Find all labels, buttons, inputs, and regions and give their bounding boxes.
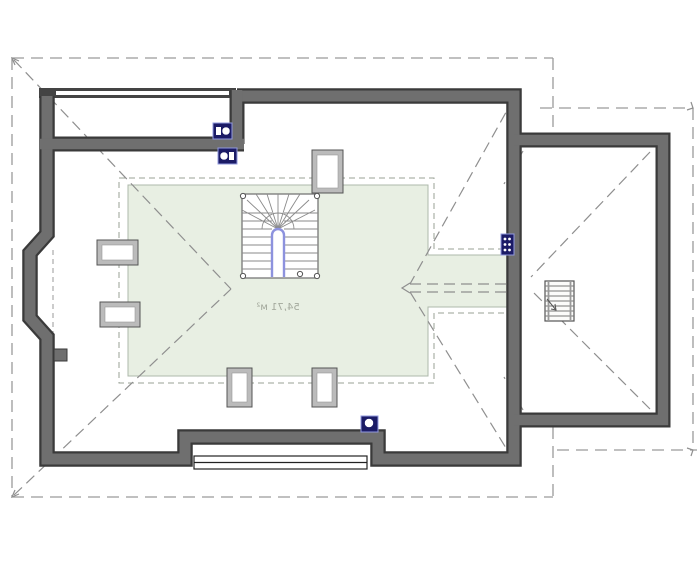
floor-plan-page: 54,71 м² (0, 0, 700, 575)
skylight-top-glass (317, 155, 338, 188)
ext-hip-line-top (531, 152, 650, 277)
skylight-left-lower-glass (105, 307, 135, 322)
wall-stub (54, 349, 67, 361)
stair-newel-posts-dot (314, 273, 319, 278)
overhang-arrow-ne (687, 102, 693, 110)
wall-vent-grille-holes-dot (508, 249, 511, 252)
wall-vent-grille-holes-dot (504, 249, 507, 252)
overhang-arrow-se (687, 448, 693, 456)
vent-chimney-top-inner-slot (229, 152, 234, 160)
stair-newel-posts-dot (240, 273, 245, 278)
stair-newel-posts-dot (297, 271, 302, 276)
ext-wall-outline-dark (514, 140, 663, 420)
wall-vent-grille-holes-dot (508, 243, 511, 246)
vent-chimney-top-outer-slot (216, 127, 221, 135)
vent-chimney-top-inner-flue (220, 152, 228, 160)
wall-vent-grille (501, 234, 514, 255)
area-label: 54,71 м² (256, 302, 299, 313)
skylight-left-upper-glass (102, 245, 133, 260)
wall-vent-grille-holes-dot (508, 238, 511, 241)
skylight-bottom-right-glass (317, 373, 332, 402)
stair-newel-posts-dot (240, 193, 245, 198)
vent-chimney-top-outer-flue (222, 127, 230, 135)
stair-newel-posts-dot (314, 193, 319, 198)
skylight-bottom-left-glass (232, 373, 247, 402)
wall-vent-grille-holes-dot (504, 238, 507, 241)
vent-chimney-bottom-flue (365, 419, 374, 428)
floor-plan: 54,71 м² (0, 0, 700, 575)
wall-vent-grille-holes-dot (504, 243, 507, 246)
ext-wall-outline (514, 140, 663, 420)
